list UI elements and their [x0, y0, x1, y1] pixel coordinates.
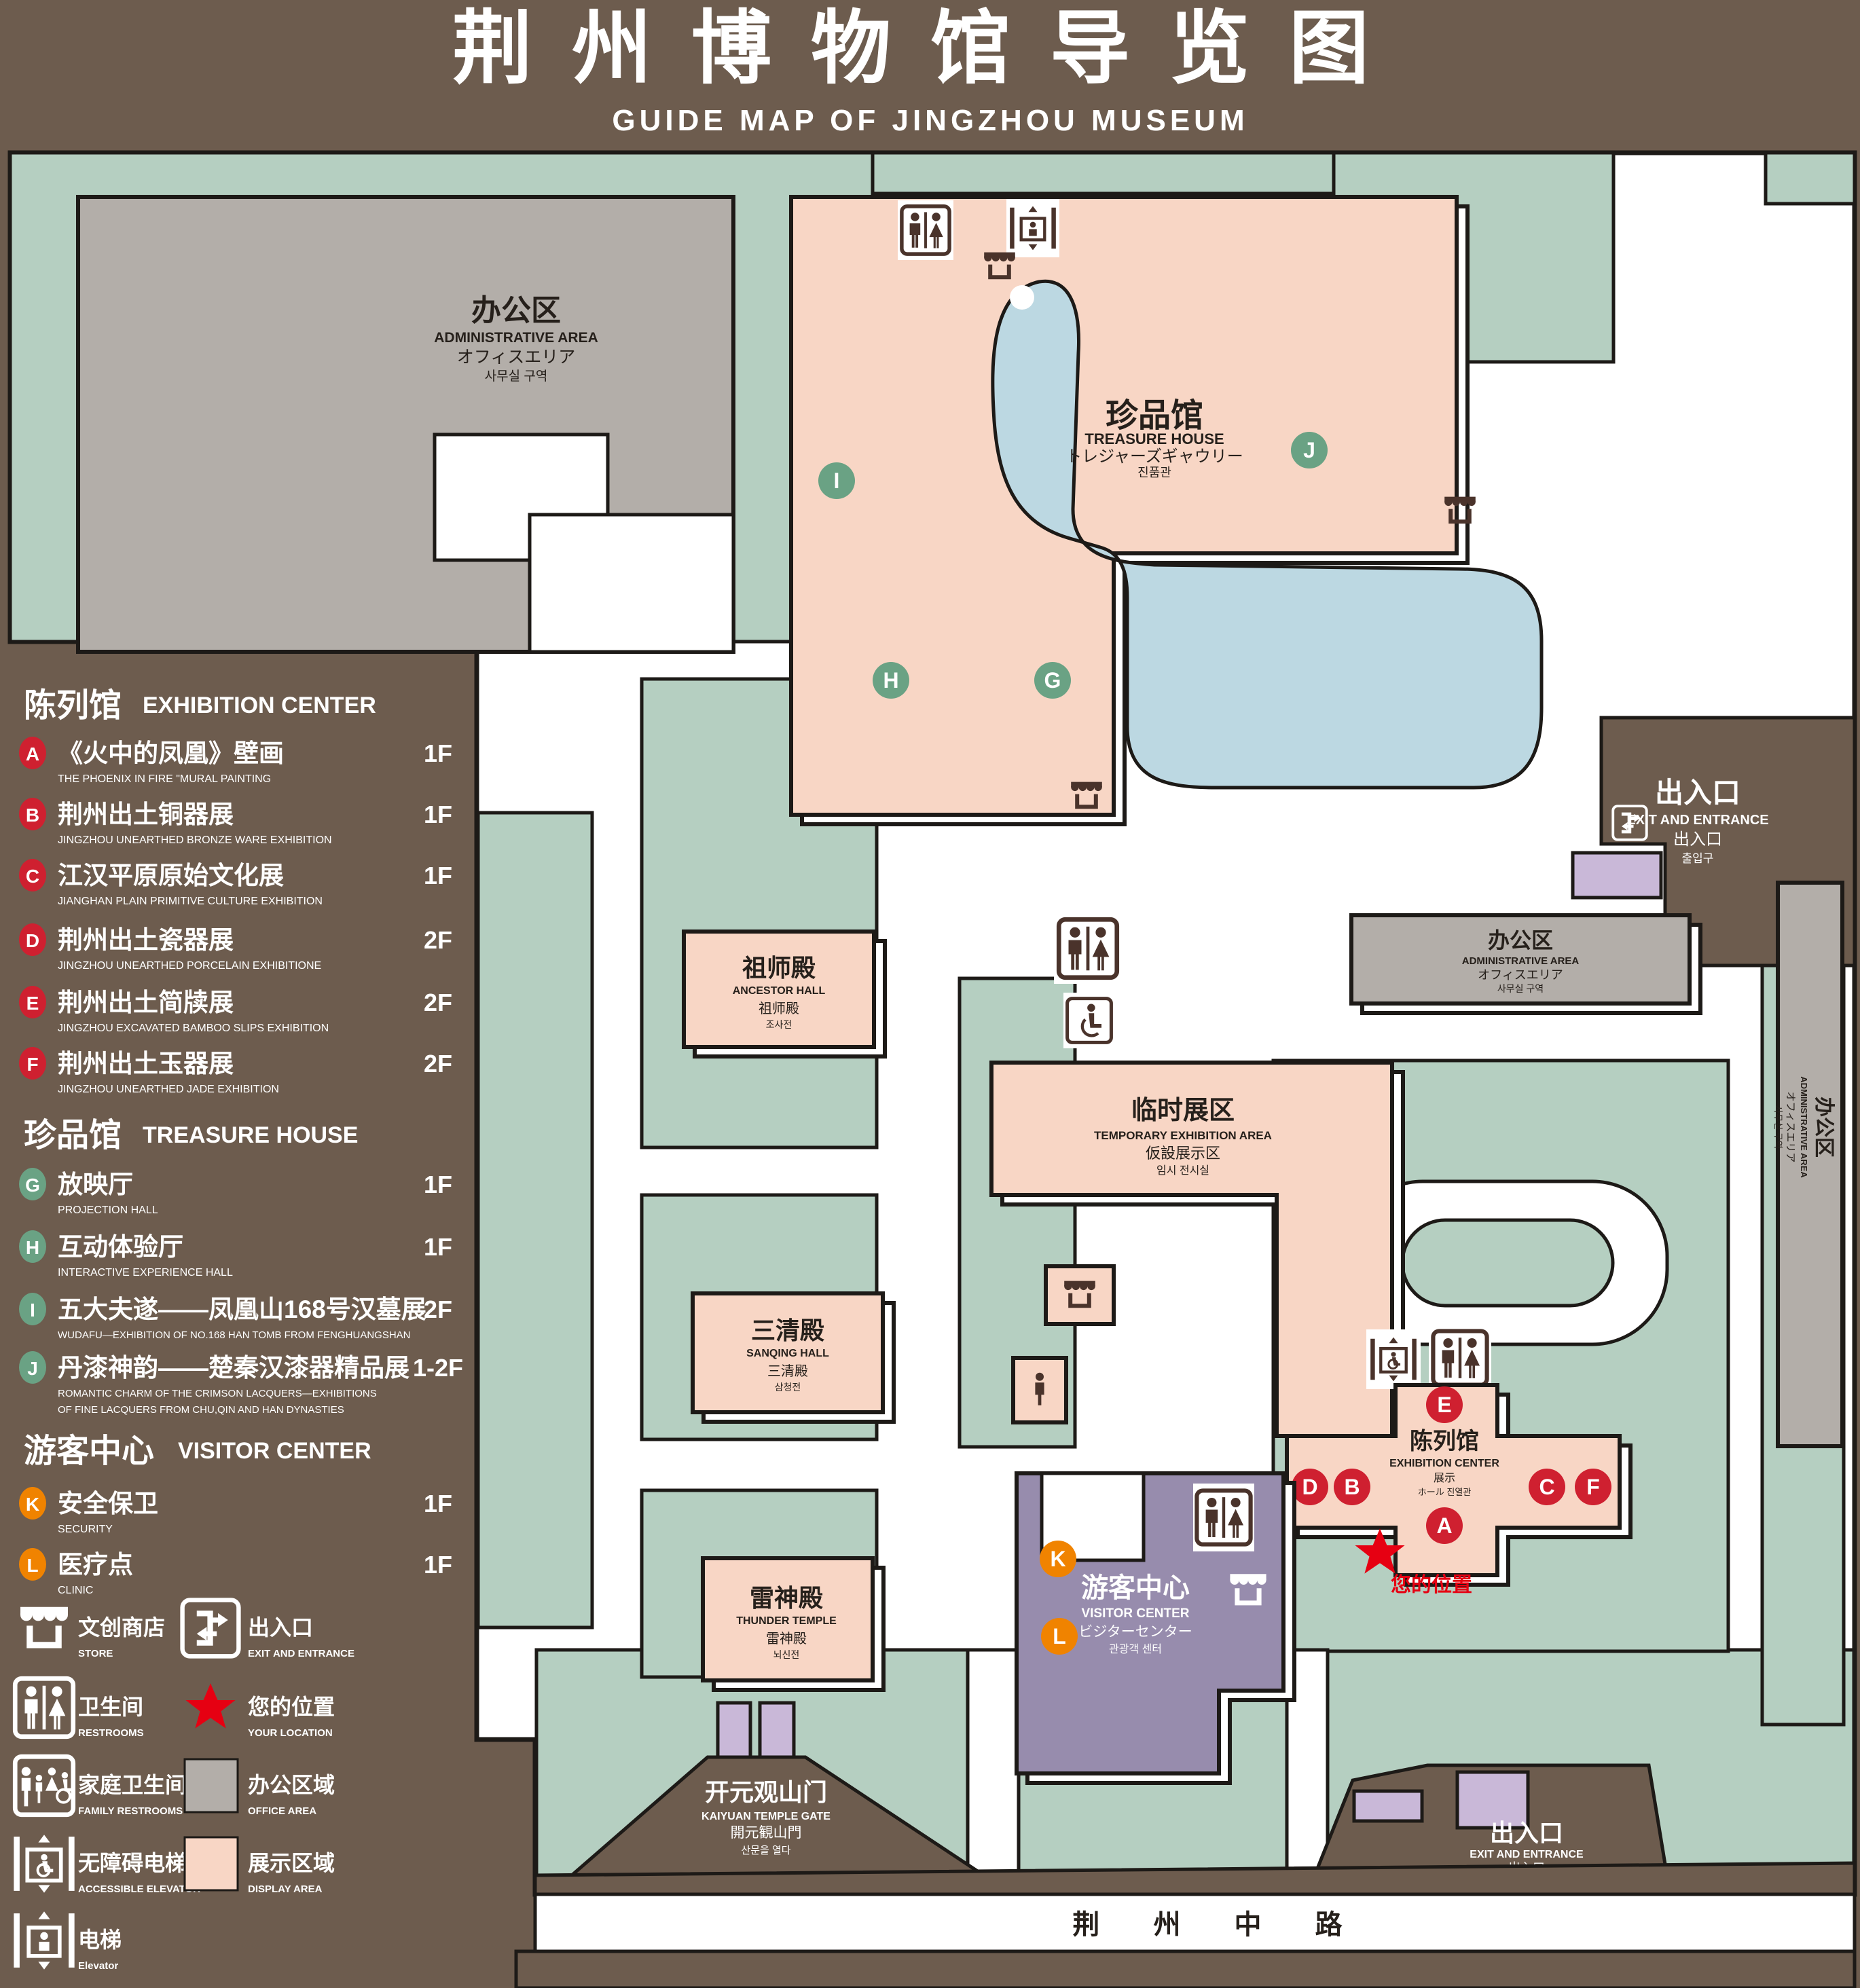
badge-K: K [1040, 1541, 1076, 1577]
legend-item-I: I 五大夫遂——凤凰山168号汉墓展 WUDAFU—EXHIBITION OF … [19, 1293, 452, 1341]
svg-text:TEMPORARY EXHIBITION AREA: TEMPORARY EXHIBITION AREA [1094, 1129, 1272, 1142]
svg-text:JINGZHOU UNEARTHED BRONZE WARE: JINGZHOU UNEARTHED BRONZE WARE EXHIBITIO… [58, 834, 332, 846]
svg-text:THUNDER TEMPLE: THUNDER TEMPLE [736, 1615, 837, 1627]
svg-text:安全保卫: 安全保卫 [58, 1489, 158, 1517]
svg-text:开元观山门: 开元观山门 [705, 1778, 827, 1806]
svg-text:电梯: 电梯 [78, 1928, 122, 1952]
svg-text:JINGZHOU EXCAVATED BAMBOO SLIP: JINGZHOU EXCAVATED BAMBOO SLIPS EXHIBITI… [58, 1023, 329, 1034]
svg-text:임시 전시실: 임시 전시실 [1156, 1164, 1209, 1177]
garden-loop-island [1402, 1220, 1613, 1306]
badge-E: E [1426, 1386, 1463, 1423]
restrooms-icon [15, 1678, 73, 1737]
legend-section-title-en: EXHIBITION CENTER [143, 693, 376, 718]
svg-text:PROJECTION HALL: PROJECTION HALL [58, 1204, 158, 1216]
svg-text:荆州出土瓷器展: 荆州出土瓷器展 [58, 926, 234, 954]
svg-text:L: L [26, 1555, 38, 1576]
elevator-icon [14, 1911, 74, 1970]
svg-text:办公区域: 办公区域 [248, 1773, 335, 1797]
svg-text:出入口: 出入口 [1490, 1819, 1563, 1847]
badge-L: L [1041, 1618, 1078, 1655]
svg-text:WUDAFU—EXHIBITION OF NO.168 HA: WUDAFU—EXHIBITION OF NO.168 HAN TOMB FRO… [58, 1329, 411, 1341]
svg-text:ビジターセンター: ビジターセンター [1078, 1624, 1192, 1640]
svg-text:1F: 1F [424, 1490, 452, 1517]
svg-text:SANQING HALL: SANQING HALL [746, 1348, 829, 1359]
svg-text:1F: 1F [424, 1171, 452, 1198]
svg-text:G: G [1044, 668, 1061, 693]
svg-text:办公区: 办公区 [471, 294, 561, 327]
svg-text:CLINIC: CLINIC [58, 1585, 93, 1596]
svg-text:開元観山門: 開元観山門 [731, 1825, 802, 1841]
svg-text:KAIYUAN TEMPLE GATE: KAIYUAN TEMPLE GATE [701, 1811, 831, 1822]
svg-text:ACCESSIBLE ELEVATOR: ACCESSIBLE ELEVATOR [78, 1883, 200, 1895]
svg-text:사무실 구역: 사무실 구역 [485, 369, 548, 384]
svg-text:放映厅: 放映厅 [58, 1171, 133, 1198]
svg-text:A: A [26, 743, 39, 765]
svg-text:J: J [1303, 438, 1315, 462]
legend-item-L: L 医疗点 CLINIC 1F [19, 1548, 452, 1596]
legend-symbol-elevator: 电梯 Elevator [14, 1911, 122, 1972]
guide-map-page: 荆州博物馆导览图 GUIDE MAP OF JINGZHOU MUSEUM 办公… [0, 0, 1860, 1988]
svg-text:JINGZHOU UNEARTHED JADE EXHIBI: JINGZHOU UNEARTHED JADE EXHIBITION [58, 1084, 279, 1095]
your-location-text: 您的位置 [1391, 1573, 1472, 1596]
svg-text:STORE: STORE [78, 1648, 113, 1659]
svg-text:三清殿: 三清殿 [767, 1363, 808, 1379]
svg-text:A: A [1436, 1513, 1452, 1538]
legend-section-title: 游客中心 [24, 1433, 154, 1469]
svg-text:卫生间: 卫生间 [78, 1695, 143, 1719]
svg-text:JIANGHAN PLAIN PRIMITIVE CULTU: JIANGHAN PLAIN PRIMITIVE CULTURE EXHIBIT… [58, 896, 323, 907]
svg-text:祖师殿: 祖师殿 [759, 1001, 799, 1016]
badge-D: D [1292, 1469, 1328, 1505]
svg-text:出入口: 出入口 [248, 1615, 313, 1640]
svg-text:荆州出土玉器展: 荆州出土玉器展 [58, 1050, 234, 1078]
svg-text:G: G [25, 1175, 40, 1196]
svg-text:DISPLAY AREA: DISPLAY AREA [248, 1883, 323, 1895]
svg-text:C: C [26, 866, 39, 887]
family-restrooms-icon [15, 1756, 73, 1815]
svg-text:2F: 2F [424, 1050, 452, 1078]
svg-text:《火中的凤凰》壁画: 《火中的凤凰》壁画 [58, 739, 284, 767]
legend-item-K: K 安全保卫 SECURITY 1F [19, 1487, 452, 1535]
badge-H: H [873, 662, 909, 699]
legend-symbol-family-restrooms: 家庭卫生间 FAMILY RESTROOMS [15, 1756, 187, 1817]
svg-text:临时展区: 临时展区 [1131, 1097, 1235, 1125]
svg-text:1F: 1F [424, 800, 452, 828]
svg-text:사무실 구역: 사무실 구역 [1773, 1105, 1783, 1148]
svg-text:ホール 진열관: ホール 진열관 [1418, 1487, 1472, 1497]
path-cut-1 [968, 1650, 1019, 1889]
svg-text:L: L [1053, 1624, 1066, 1649]
legend: 陈列馆 EXHIBITION CENTER A 《火中的凤凰》壁画 THE PH… [14, 688, 463, 1972]
svg-text:出入口: 出入口 [1655, 777, 1740, 809]
svg-text:荆州出土简牍展: 荆州出土简牍展 [58, 989, 234, 1016]
building-thunder-temple: 雷神殿 THUNDER TEMPLE 雷神殿 뇌신전 [703, 1558, 883, 1690]
svg-text:2F: 2F [424, 926, 452, 954]
green-area-west-column [478, 813, 592, 1627]
building-treasure-house: 珍品馆 TREASURE HOUSE トレジャーズギャウリー 진품관 I J H… [791, 197, 1542, 824]
svg-text:2F: 2F [424, 989, 452, 1016]
svg-text:EXIT AND ENTRANCE: EXIT AND ENTRANCE [248, 1648, 354, 1659]
svg-text:オフィスエリア: オフィスエリア [1478, 968, 1563, 982]
svg-text:祖师殿: 祖师殿 [742, 954, 816, 982]
svg-text:뇌신전: 뇌신전 [773, 1649, 800, 1660]
legend-symbol-restrooms: 卫生间 RESTROOMS [15, 1678, 143, 1739]
svg-text:출입구: 출입구 [1682, 852, 1714, 865]
svg-text:J: J [27, 1358, 38, 1379]
svg-text:展示区域: 展示区域 [248, 1851, 335, 1875]
svg-text:Elevator: Elevator [78, 1960, 118, 1972]
svg-text:陈列馆: 陈列馆 [1410, 1429, 1479, 1454]
svg-text:ROMANTIC CHARM OF THE CRIMSON: ROMANTIC CHARM OF THE CRIMSON LACQUERS—E… [58, 1388, 377, 1399]
svg-text:五大夫遂——凤凰山168号汉墓展: 五大夫遂——凤凰山168号汉墓展 [58, 1295, 426, 1323]
svg-text:EXHIBITION CENTER: EXHIBITION CENTER [1389, 1458, 1499, 1469]
svg-text:VISITOR CENTER: VISITOR CENTER [1081, 1606, 1189, 1621]
svg-text:オフィスエリア: オフィスエリア [457, 348, 576, 367]
svg-text:EXIT AND ENTRANCE: EXIT AND ENTRANCE [1470, 1849, 1584, 1860]
building-admin-northwest: 办公区 ADMINISTRATIVE AREA オフィスエリア 사무실 구역 [78, 197, 733, 652]
entrance-marker [1573, 853, 1661, 898]
badge-F: F [1575, 1469, 1611, 1505]
svg-text:H: H [883, 668, 898, 693]
svg-text:ADMINISTRATIVE AREA: ADMINISTRATIVE AREA [1799, 1076, 1809, 1178]
accessible-box [1063, 993, 1115, 1048]
svg-text:EXIT AND ENTRANCE: EXIT AND ENTRANCE [1626, 813, 1768, 828]
legend-symbol-store: 文创商店 STORE [20, 1607, 165, 1659]
svg-text:조사전: 조사전 [766, 1019, 792, 1030]
svg-text:관광객 센터: 관광객 센터 [1109, 1643, 1162, 1655]
office-area-swatch [185, 1759, 238, 1812]
svg-text:办公区: 办公区 [1488, 928, 1553, 953]
store-icon [20, 1607, 68, 1649]
svg-text:1-2F: 1-2F [413, 1354, 463, 1382]
svg-text:江汉平原原始文化展: 江汉平原原始文化展 [58, 862, 284, 889]
exit-icon [183, 1600, 239, 1657]
accessible-elevator-icon [14, 1835, 74, 1893]
svg-text:文创商店: 文创商店 [78, 1615, 165, 1640]
badge-I: I [818, 462, 855, 499]
svg-text:办公区: 办公区 [1812, 1097, 1835, 1158]
building-ancestor-hall: 祖师殿 ANCESTOR HALL 祖师殿 조사전 [684, 932, 885, 1056]
svg-text:E: E [1437, 1393, 1451, 1417]
entrance-marker [760, 1703, 794, 1757]
svg-text:雷神殿: 雷神殿 [766, 1631, 807, 1646]
badge-A: A [1426, 1507, 1463, 1544]
svg-text:D: D [26, 930, 39, 951]
legend-item-H: H 互动体验厅 INTERACTIVE EXPERIENCE HALL 1F [19, 1230, 452, 1278]
legend-item-G: G 放映厅 PROJECTION HALL 1F [19, 1168, 452, 1216]
svg-text:OF FINE LACQUERS FROM CHU,QIN: OF FINE LACQUERS FROM CHU,QIN AND HAN DY… [58, 1404, 344, 1416]
svg-text:E: E [26, 993, 39, 1014]
svg-text:医疗点: 医疗点 [58, 1551, 133, 1579]
svg-text:2F: 2F [424, 1295, 452, 1323]
building-admin-east-strip: 办公区 ADMINISTRATIVE AREA オフィスエリア 사무실 구역 [1773, 883, 1842, 1446]
legend-item-J: J 丹漆神韵——楚秦汉漆器精品展 ROMANTIC CHARM OF THE C… [19, 1351, 463, 1416]
svg-text:TREASURE HOUSE: TREASURE HOUSE [1084, 430, 1224, 447]
svg-text:진품관: 진품관 [1137, 466, 1171, 479]
entrance-marker [718, 1703, 750, 1757]
legend-item-B: B 荆州出土铜器展 JINGZHOU UNEARTHED BRONZE WARE… [19, 798, 452, 846]
svg-text:JINGZHOU UNEARTHED PORCELAIN E: JINGZHOU UNEARTHED PORCELAIN EXHIBITIONE [58, 960, 321, 972]
badge-C: C [1529, 1469, 1565, 1505]
svg-text:1F: 1F [424, 862, 452, 889]
svg-text:无障碍电梯: 无障碍电梯 [78, 1851, 187, 1875]
store-stub [1046, 1266, 1114, 1324]
svg-text:家庭卫生间: 家庭卫生间 [78, 1773, 187, 1797]
svg-text:珍品馆: 珍品馆 [1106, 398, 1203, 434]
legend-symbol-accessible-elevator: 无障碍电梯 ACCESSIBLE ELEVATOR [14, 1835, 200, 1895]
svg-text:您的位置: 您的位置 [248, 1695, 335, 1719]
svg-text:THE PHOENIX IN FIRE "MURAL PAI: THE PHOENIX IN FIRE "MURAL PAINTING [58, 773, 271, 785]
svg-text:雷神殿: 雷神殿 [750, 1584, 823, 1612]
building-sanqing-hall: 三清殿 SANQING HALL 三清殿 삼청전 [693, 1293, 894, 1422]
svg-text:K: K [26, 1494, 39, 1515]
svg-text:B: B [26, 805, 39, 826]
legend-symbol-office-area: 办公区域 OFFICE AREA [185, 1759, 335, 1817]
svg-text:H: H [26, 1237, 39, 1258]
svg-text:산문을 열다: 산문을 열다 [741, 1845, 790, 1856]
svg-text:仮設展示区: 仮設展示区 [1146, 1145, 1220, 1162]
building-admin-east: 办公区 ADMINISTRATIVE AREA オフィスエリア 사무실 구역 [1351, 915, 1700, 1013]
legend-item-D: D 荆州出土瓷器展 JINGZHOU UNEARTHED PORCELAIN E… [19, 923, 452, 972]
legend-section-title-en: VISITOR CENTER [178, 1438, 371, 1464]
svg-text:トレジャーズギャウリー: トレジャーズギャウリー [1065, 447, 1243, 466]
svg-text:互动体验厅: 互动体验厅 [58, 1233, 183, 1261]
legend-section-title: 陈列馆 [24, 688, 122, 724]
display-area-swatch [185, 1837, 238, 1890]
svg-text:K: K [1050, 1547, 1065, 1571]
green-area-top-strip [873, 153, 1347, 194]
svg-text:出入口: 出入口 [1673, 830, 1722, 849]
svg-text:F: F [26, 1054, 38, 1075]
svg-text:I: I [834, 468, 840, 493]
svg-text:ANCESTOR HALL: ANCESTOR HALL [733, 985, 826, 997]
legend-item-C: C 江汉平原原始文化展 JIANGHAN PLAIN PRIMITIVE CUL… [19, 859, 452, 907]
svg-text:1F: 1F [424, 739, 452, 767]
badge-J: J [1291, 432, 1328, 468]
svg-text:I: I [30, 1300, 35, 1321]
road-south-strip [516, 1951, 1855, 1988]
svg-text:C: C [1539, 1475, 1554, 1499]
legend-section-title: 珍品馆 [24, 1118, 122, 1154]
svg-text:荆州出土铜器展: 荆州出土铜器展 [58, 800, 234, 828]
svg-text:ADMINISTRATIVE AREA: ADMINISTRATIVE AREA [434, 330, 598, 346]
svg-text:OFFICE AREA: OFFICE AREA [248, 1805, 316, 1817]
svg-text:展示: 展示 [1434, 1473, 1455, 1484]
green-area-ne-corner [1766, 153, 1855, 204]
svg-text:1F: 1F [424, 1233, 452, 1261]
svg-text:1F: 1F [424, 1551, 452, 1579]
legend-item-F: F 荆州出土玉器展 JINGZHOU UNEARTHED JADE EXHIBI… [19, 1047, 452, 1095]
svg-text:丹漆神韵——楚秦汉漆器精品展: 丹漆神韵——楚秦汉漆器精品展 [58, 1354, 409, 1382]
legend-symbol-exit: 出入口 EXIT AND ENTRANCE [183, 1600, 354, 1659]
svg-text:ADMINISTRATIVE AREA: ADMINISTRATIVE AREA [1462, 955, 1580, 967]
page-title: 荆州博物馆导览图 [452, 4, 1408, 94]
pond-accent [1010, 285, 1034, 310]
svg-text:INTERACTIVE EXPERIENCE HALL: INTERACTIVE EXPERIENCE HALL [58, 1267, 233, 1278]
svg-text:三清殿: 三清殿 [751, 1317, 824, 1344]
legend-symbol-your-location: 您的位置 YOUR LOCATION [185, 1683, 335, 1739]
badge-G: G [1034, 662, 1071, 699]
svg-text:삼청전: 삼청전 [775, 1382, 801, 1393]
svg-text:RESTROOMS: RESTROOMS [78, 1727, 144, 1739]
svg-text:オフィスエリア: オフィスエリア [1785, 1092, 1796, 1163]
museum-guide-map: 荆州博物馆导览图 GUIDE MAP OF JINGZHOU MUSEUM 办公… [0, 0, 1860, 1988]
svg-text:游客中心: 游客中心 [1081, 1573, 1190, 1603]
entrance-marker [1354, 1791, 1422, 1821]
badge-B: B [1334, 1469, 1370, 1505]
page-subtitle: GUIDE MAP OF JINGZHOU MUSEUM [612, 104, 1248, 137]
svg-text:B: B [1344, 1475, 1360, 1499]
your-location-icon [185, 1683, 235, 1728]
svg-text:사무실 구역: 사무실 구역 [1497, 983, 1544, 994]
svg-text:SECURITY: SECURITY [58, 1524, 113, 1535]
svg-text:YOUR LOCATION: YOUR LOCATION [248, 1727, 333, 1739]
svg-text:FAMILY RESTROOMS: FAMILY RESTROOMS [78, 1805, 183, 1817]
legend-item-A: A 《火中的凤凰》壁画 THE PHOENIX IN FIRE "MURAL P… [19, 737, 452, 785]
legend-symbol-display-area: 展示区域 DISPLAY AREA [185, 1837, 335, 1895]
svg-text:F: F [1586, 1475, 1600, 1499]
road-label: 荆 州 中 路 [1072, 1910, 1365, 1940]
legend-item-E: E 荆州出土简牍展 JINGZHOU EXCAVATED BAMBOO SLIP… [19, 986, 452, 1034]
legend-section-title-en: TREASURE HOUSE [143, 1122, 358, 1148]
svg-text:D: D [1302, 1475, 1317, 1499]
